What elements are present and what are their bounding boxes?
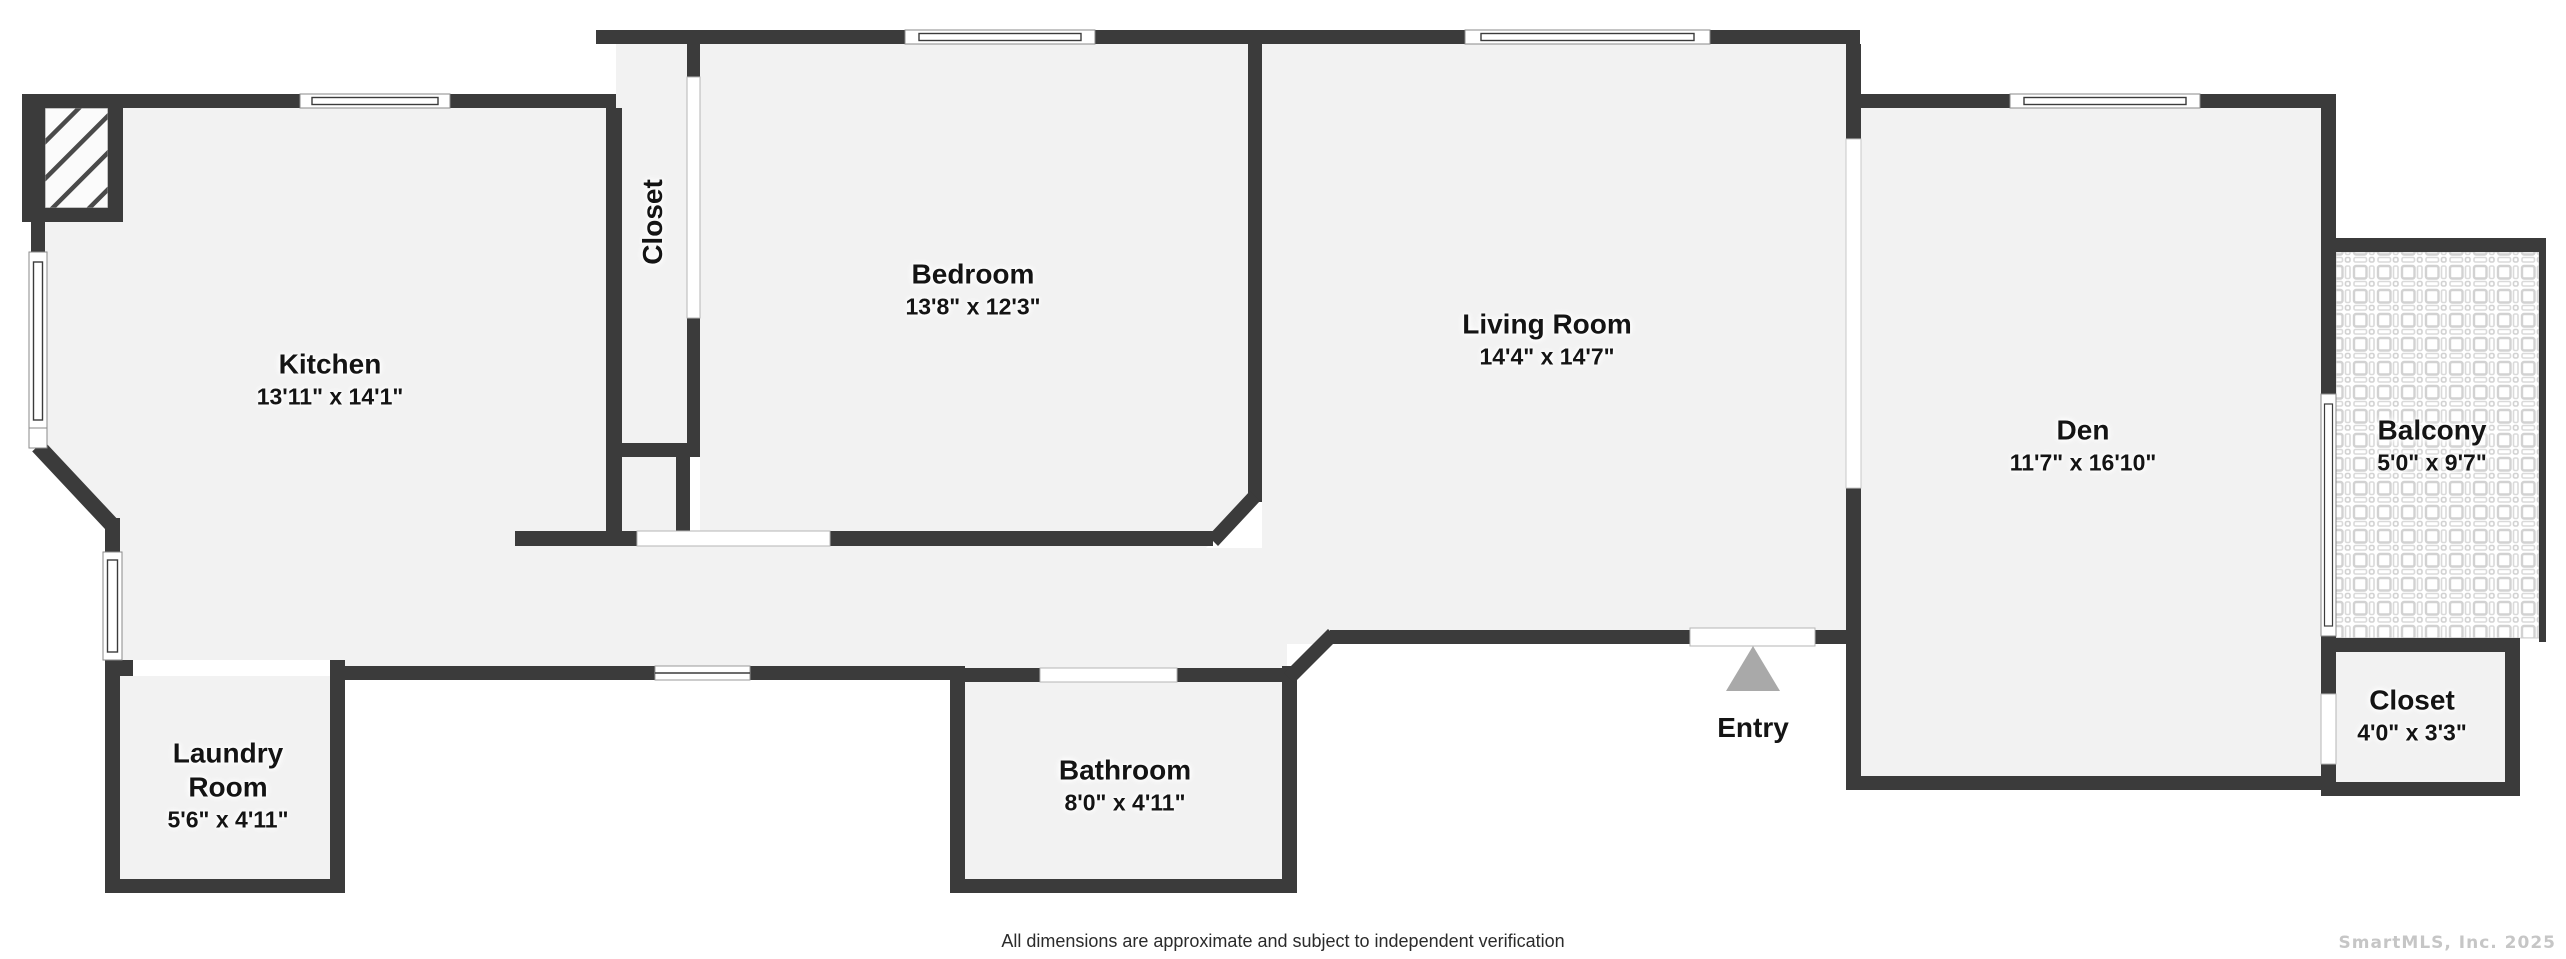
room-label-closet-br: Closet 4'0" x 3'3" (2357, 684, 2467, 749)
hatched-area (45, 108, 108, 208)
room-label-bathroom: Bathroom 8'0" x 4'11" (1059, 754, 1191, 819)
entry-triangle (1726, 646, 1780, 691)
bedroom-name: Bedroom (905, 258, 1040, 292)
living-room-name: Living Room (1462, 308, 1632, 342)
room-label-bedroom: Bedroom 13'8" x 12'3" (905, 258, 1040, 323)
kitchen-name: Kitchen (257, 348, 404, 382)
room-label-kitchen: Kitchen 13'11" x 14'1" (257, 348, 404, 413)
kitchen-dims: 13'11" x 14'1" (257, 382, 404, 413)
room-label-laundry: Laundry Room 5'6" x 4'11" (167, 737, 288, 836)
floorplan-page: Kitchen 13'11" x 14'1" Closet Bedroom 13… (0, 0, 2566, 959)
room-label-balcony: Balcony 5'0" x 9'7" (2377, 414, 2487, 479)
room-label-living-room: Living Room 14'4" x 14'7" (1462, 308, 1632, 373)
bedroom-dims: 13'8" x 12'3" (905, 292, 1040, 323)
floorplan-drawing (0, 0, 2566, 959)
room-label-entry: Entry (1717, 711, 1789, 745)
disclaimer-text: All dimensions are approximate and subje… (0, 931, 2566, 952)
entry-name: Entry (1717, 711, 1789, 745)
balcony-dims: 5'0" x 9'7" (2377, 448, 2487, 479)
den-name: Den (2010, 414, 2157, 448)
bathroom-dims: 8'0" x 4'11" (1059, 788, 1191, 819)
closet-hall-name: Closet (636, 179, 670, 265)
balcony-name: Balcony (2377, 414, 2487, 448)
room-label-den: Den 11'7" x 16'10" (2010, 414, 2157, 479)
closet-br-dims: 4'0" x 3'3" (2357, 718, 2467, 749)
room-label-closet-hall: Closet (636, 179, 670, 265)
living-room-dims: 14'4" x 14'7" (1462, 342, 1632, 373)
laundry-dims: 5'6" x 4'11" (167, 805, 288, 836)
watermark-text: SmartMLS, Inc. 2025 (2338, 933, 2556, 953)
laundry-name-line2: Room (167, 771, 288, 805)
closet-br-name: Closet (2357, 684, 2467, 718)
den-dims: 11'7" x 16'10" (2010, 448, 2157, 479)
bathroom-name: Bathroom (1059, 754, 1191, 788)
laundry-name-line1: Laundry (167, 737, 288, 771)
